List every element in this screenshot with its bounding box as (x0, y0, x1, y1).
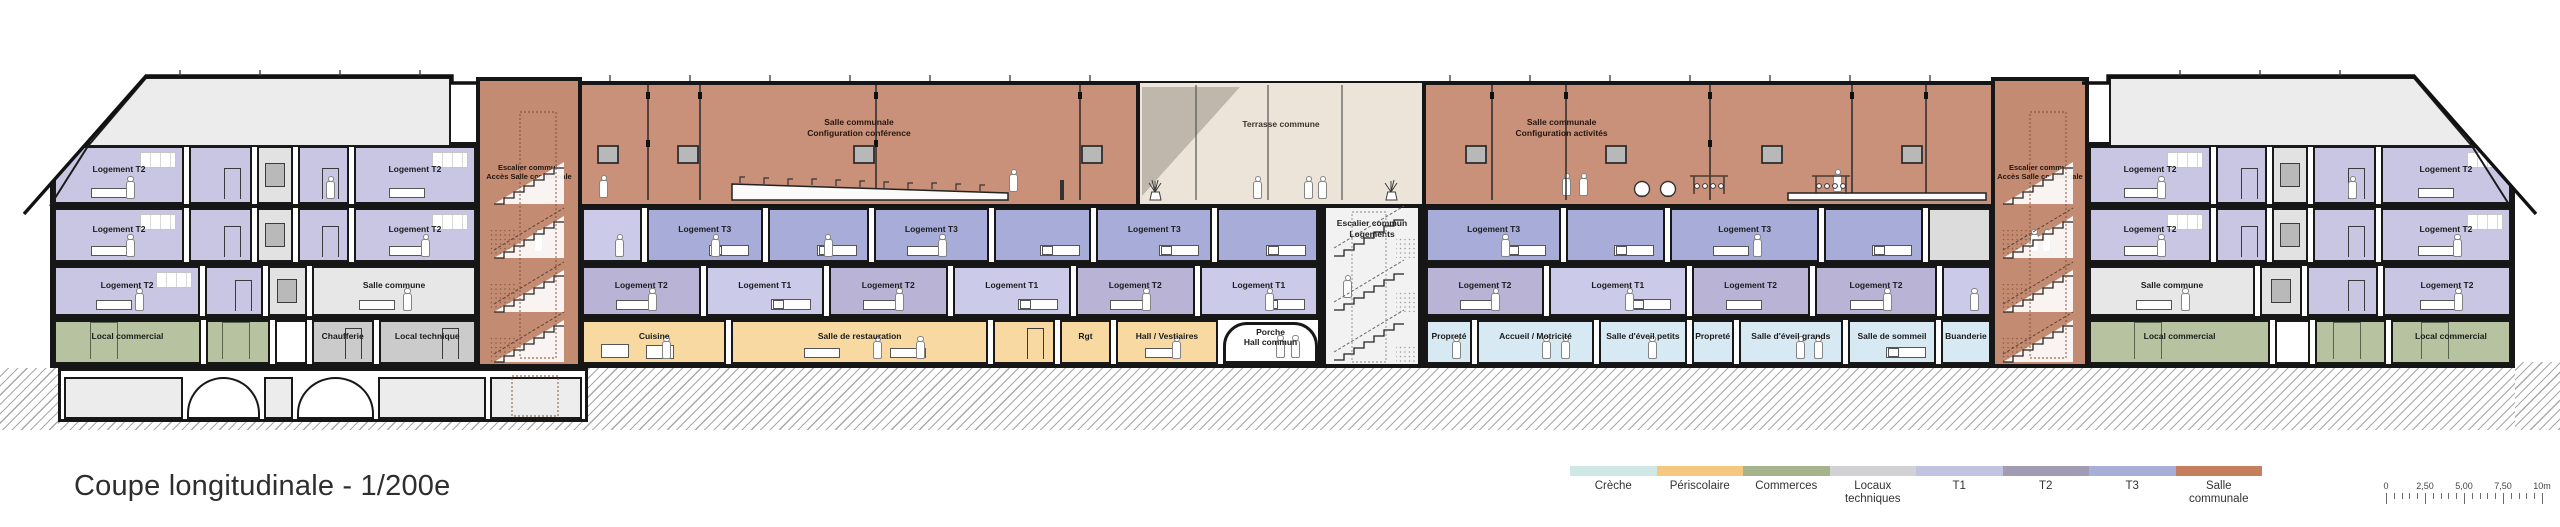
bed-glyph (1266, 245, 1306, 256)
legend-label: Périscolaire (1657, 480, 1744, 493)
room-tech: Local technique (379, 320, 476, 364)
person-figure (1264, 288, 1273, 311)
bed-glyph (1631, 299, 1671, 310)
room-t3: Logement T3 (874, 208, 990, 262)
lift-glyph (2280, 223, 2300, 247)
room-label: Logement T3 (1718, 224, 1771, 234)
bed-glyph (1040, 245, 1080, 256)
table-glyph (2418, 246, 2454, 256)
legend-swatch (2176, 466, 2263, 476)
floor-strip-rw-f3: Logement T2Logement T2 (2085, 204, 2515, 266)
person-figure (915, 336, 924, 359)
room-t2w (2216, 208, 2267, 262)
person-figure (1579, 173, 1588, 196)
room-t1: Logement T1 (1200, 266, 1319, 316)
scale-tick (2441, 493, 2442, 499)
person-figure (1491, 288, 1500, 311)
room-label: Logement T2 (2420, 164, 2473, 174)
stair-core-center: Escalier commun Logements (1322, 204, 1422, 368)
room-t3 (994, 208, 1091, 262)
room-t2: Logement T2 (1076, 266, 1195, 316)
person-figure (2156, 176, 2165, 199)
room-cavern (264, 377, 293, 419)
room-t3: Logement T3 (647, 208, 763, 262)
room-t3: Logement T3 (1670, 208, 1819, 262)
room-shaft (2272, 208, 2308, 262)
table-glyph (389, 246, 425, 256)
person-figure (1882, 288, 1891, 311)
room-t1: Logement T1 (706, 266, 825, 316)
person-figure (134, 288, 143, 311)
table-glyph (2124, 188, 2160, 198)
table-glyph (359, 300, 395, 310)
room-label: Salle de sommeil (1858, 331, 1927, 341)
floor-strip-rw-f2: Salle communeLogement T2 (2085, 262, 2515, 320)
floor-strip-c-f3-r: Logement T3Logement T3 (1422, 204, 1995, 266)
room-label: Logement T1 (1591, 280, 1644, 290)
room-tech: Chaufferie (312, 320, 374, 364)
room-label: Salle commune (2141, 280, 2203, 290)
legend-label: Salle communale (2176, 480, 2263, 506)
scale-ticks (2386, 493, 2550, 505)
room-label: Salle communale Configuration activités (1426, 117, 1697, 138)
floor-strip-c-f2-l: Logement T2Logement T1Logement T2Logemen… (578, 262, 1322, 320)
person-figure (1833, 169, 1842, 192)
legend-label: T2 (2003, 480, 2090, 493)
person-figure (615, 234, 624, 257)
room-vault (297, 377, 374, 419)
room-t3 (1824, 208, 1923, 262)
bed-glyph (771, 299, 811, 310)
scale-tick (2402, 493, 2403, 499)
floor-strip-rw-gr: Local commercialLocal commercial (2085, 316, 2515, 368)
legend-swatch (1743, 466, 1830, 476)
legend-label: Commerces (1743, 480, 1830, 493)
room-shaft (268, 266, 308, 316)
room-cre: Salle d'éveil petits (1599, 320, 1687, 364)
person-figure (599, 175, 608, 198)
room-label: Logement T3 (678, 224, 731, 234)
scale-number: 0 (2383, 481, 2388, 491)
stair-tower-left: Escalier commun Accès Salle communale (476, 77, 582, 368)
room-label: Logement T1 (738, 280, 791, 290)
person-figure (1253, 176, 1262, 199)
room-t2w (298, 208, 349, 262)
room-t2w: Logement T2 (2089, 146, 2211, 204)
door-glyph (2348, 280, 2365, 311)
room-t2w: Logement T2 (54, 266, 200, 316)
scale-tick (2425, 493, 2426, 504)
stair-tower-right: Escalier commun Accès Salle communale (1991, 77, 2089, 368)
room-peri: Cuisine (582, 320, 726, 364)
room-label: Porche Hall commun (1244, 327, 1297, 347)
table-glyph (804, 348, 840, 358)
floor-strip-c-f3-l: Logement T3Logement T3Logement T3 (578, 204, 1322, 266)
scale-number: 10m (2533, 481, 2551, 491)
room-t2w (2307, 266, 2378, 316)
room-label: Logement T2 (2421, 280, 2474, 290)
floor-strip-c-f2-r: Logement T2Logement T1Logement T2Logemen… (1422, 262, 1995, 320)
room-label: Local technique (395, 331, 460, 341)
room-label: Propreté (1431, 331, 1466, 341)
person-figure (1562, 173, 1571, 196)
floor-strip-lw-base (58, 368, 588, 422)
legend-item: Salle communale (2176, 466, 2263, 506)
room-t1: Logement T1 (1549, 266, 1687, 316)
terrasse-commune: Terrasse commune (1140, 81, 1422, 208)
room-label: Escalier commun Accès Salle communale (480, 163, 578, 182)
person-figure (1969, 288, 1978, 311)
person-figure (647, 288, 656, 311)
person-figure (1752, 234, 1761, 257)
floor-strip-c-gr-r: PropretéAccueil / MotricitéSalle d'éveil… (1422, 316, 1995, 368)
lift-glyph (2271, 279, 2291, 303)
door-glyph (224, 168, 241, 199)
floor-strip-lw-f3: Logement T2Logement T2 (50, 204, 480, 266)
scale-tick (2542, 493, 2543, 504)
room-label: Logement T3 (1128, 224, 1181, 234)
legend-label: Locaux techniques (1830, 480, 1917, 506)
scale-tick (2456, 493, 2457, 499)
legend-item: Commerces (1743, 466, 1830, 506)
room-cre: Propreté (1426, 320, 1472, 364)
person-figure (894, 288, 903, 311)
person-figure (2156, 234, 2165, 257)
person-figure (2029, 229, 2038, 252)
bed-glyph (1614, 245, 1654, 256)
room-label: Logement T2 (101, 280, 154, 290)
room-t2: Logement T2 (1815, 266, 1938, 316)
person-figure (402, 288, 411, 311)
scale-bar: 02,505,007,5010m (2386, 481, 2550, 511)
room-t2w (2313, 146, 2376, 204)
table-glyph (2124, 246, 2160, 256)
room-label: Hall / Vestiaires (1136, 331, 1198, 341)
room-porche: Porche Hall commun (1223, 322, 1318, 364)
person-figure (2452, 234, 2461, 257)
person-figure (326, 176, 335, 199)
table-glyph (2136, 300, 2172, 310)
bed-glyph (1159, 245, 1199, 256)
bed-glyph (1886, 347, 1926, 358)
room-label: Salle commune (363, 280, 425, 290)
room-label: Chaufferie (322, 331, 364, 341)
room-t2w (189, 208, 252, 262)
table-glyph (2420, 300, 2456, 310)
legend-label: T3 (2089, 480, 2176, 493)
room-t1: Logement T1 (953, 266, 1072, 316)
room-label: Salle communale Configuration conférence (582, 117, 1136, 138)
room-comm: Local commercial (2089, 320, 2270, 364)
legend-swatch (1916, 466, 2003, 476)
room-t2w (298, 146, 349, 204)
room-label: Rgt (1078, 331, 1092, 341)
room-label: Logement T1 (985, 280, 1038, 290)
room-label: Local commercial (2415, 331, 2487, 341)
room-peri (993, 320, 1055, 364)
room-t2w: Logement T2 (354, 208, 476, 262)
room-t1 (1942, 266, 1991, 316)
room-t2w: Logement T2 (2381, 208, 2511, 262)
room-label: Logement T2 (2420, 224, 2473, 234)
room-label: Escalier commun Accès Salle communale (1995, 163, 2085, 182)
legend-item: Périscolaire (1657, 466, 1744, 506)
bed-glyph (1872, 245, 1912, 256)
scale-number: 7,50 (2494, 481, 2512, 491)
floor-strip-lw-gr: Local commercialChaufferieLocal techniqu… (50, 316, 480, 368)
person-figure (125, 234, 134, 257)
door-glyph (2241, 226, 2258, 257)
room-label: Salle de restauration (818, 331, 902, 341)
room-cave (378, 377, 486, 419)
room-salleco: Salle commune (312, 266, 476, 316)
room-t2w: Logement T2 (54, 146, 184, 204)
room-t2w: Logement T2 (2381, 146, 2511, 204)
window-glyph (156, 272, 192, 288)
room-shaft (2272, 146, 2308, 204)
scale-tick (2495, 493, 2496, 499)
room-label: Propreté (1695, 331, 1730, 341)
floor-strip-c-gr-l: CuisineSalle de restaurationRgtHall / Ve… (578, 316, 1322, 368)
person-figure (2180, 288, 2189, 311)
room-t2w (205, 266, 262, 316)
bed-glyph (1018, 299, 1058, 310)
scale-tick (2511, 493, 2512, 499)
room-label: Logement T2 (1724, 280, 1777, 290)
room-label: Buanderie (1945, 331, 1987, 341)
room-porte (2275, 320, 2310, 364)
room-t2: Logement T2 (1692, 266, 1810, 316)
room-vault (187, 377, 260, 419)
room-peri: Hall / Vestiaires (1116, 320, 1218, 364)
room-t2w: Logement T2 (54, 208, 184, 262)
salle-communale-activites: Salle communale Configuration activités (1422, 81, 1995, 208)
room-label: Logement T2 (2124, 224, 2177, 234)
table-glyph (1713, 246, 1749, 256)
legend-item: T2 (2003, 466, 2090, 506)
person-figure (1343, 275, 1352, 298)
room-label: Cuisine (639, 331, 670, 341)
door-glyph (2241, 168, 2258, 199)
salle-communale-conference: Salle communale Configuration conférence (578, 81, 1140, 208)
legend-swatch (2089, 466, 2176, 476)
scale-tick (2409, 493, 2410, 499)
scale-tick (2480, 493, 2481, 499)
legend-swatch (1570, 466, 1657, 476)
room-shaft (257, 208, 293, 262)
legend: CrèchePériscolaireCommercesLocaux techni… (1570, 466, 2262, 506)
room-comm (206, 320, 270, 364)
room-shaft (2260, 266, 2302, 316)
legend-swatch (1830, 466, 1917, 476)
room-label: Logement T2 (1459, 280, 1512, 290)
room-label: Terrasse commune (1140, 119, 1422, 130)
legend-label: Crèche (1570, 480, 1657, 493)
floor-strip-rw-attic: Logement T2Logement T2 (2085, 142, 2515, 208)
room-porte (275, 320, 306, 364)
scale-numbers: 02,505,007,5010m (2386, 481, 2550, 493)
person-figure (125, 176, 134, 199)
room-label: Logement T2 (1850, 280, 1903, 290)
bed-glyph (1506, 245, 1546, 256)
scale-tick (2394, 493, 2395, 499)
person-figure (823, 234, 832, 257)
room-cave (64, 377, 183, 419)
room-label: Logement T2 (388, 224, 441, 234)
floor-strip-lw-f2: Logement T2Salle commune (50, 262, 480, 320)
person-figure (2347, 176, 2356, 199)
person-figure (710, 234, 719, 257)
drawing-title: Coupe longitudinale - 1/200e (74, 470, 450, 503)
room-comm: Local commercial (54, 320, 201, 364)
scale-tick (2464, 493, 2465, 504)
section-drawing: Salle communale Configuration conférence… (0, 0, 2560, 527)
legend-item: T3 (2089, 466, 2176, 506)
table-glyph (96, 300, 132, 310)
room-label: Logement T2 (93, 224, 146, 234)
room-t2w: Logement T2 (2089, 208, 2211, 262)
table-glyph (91, 246, 127, 256)
door-glyph (322, 226, 339, 257)
door-glyph (1027, 328, 1044, 359)
doorg-glyph (222, 322, 250, 359)
room-cavedot (490, 377, 582, 419)
room-label: Salle d'éveil grands (1751, 331, 1830, 341)
scale-tick (2472, 493, 2473, 499)
lift-glyph (2280, 163, 2300, 187)
room-label: Logement T2 (388, 164, 441, 174)
room-cre: Salle d'éveil grands (1739, 320, 1844, 364)
table-glyph (389, 188, 425, 198)
legend-label: T1 (1916, 480, 2003, 493)
room-grayr (1928, 208, 1991, 262)
room-label: Logement T2 (1109, 280, 1162, 290)
room-cre: Salle de sommeil (1848, 320, 1936, 364)
room-t2: Logement T2 (1426, 266, 1544, 316)
person-figure (1500, 234, 1509, 257)
person-figure (1009, 169, 1018, 192)
room-t2w (2216, 146, 2267, 204)
room-label: Logement T2 (2124, 164, 2177, 174)
scale-tick (2534, 493, 2535, 499)
room-salleco: Salle commune (2089, 266, 2255, 316)
room-t3: Logement T3 (1096, 208, 1212, 262)
scale-tick (2526, 493, 2527, 499)
room-peri: Rgt (1060, 320, 1111, 364)
scale-tick (2503, 493, 2504, 504)
table-glyph (91, 188, 127, 198)
person-figure (1304, 176, 1313, 199)
attic-void-left (88, 78, 450, 146)
room-label: Logement T2 (615, 280, 668, 290)
terrain-right (2515, 362, 2560, 430)
room-label: Salle d'éveil petits (1606, 331, 1679, 341)
scale-tick (2386, 493, 2387, 504)
room-label: Logement T2 (862, 280, 915, 290)
room-cre: Accueil / Motricité (1477, 320, 1594, 364)
terrain-left (0, 368, 58, 430)
room-t3 (1217, 208, 1318, 262)
legend-item: T1 (1916, 466, 2003, 506)
room-label: Escalier commun Logements (1326, 218, 1418, 239)
lift-glyph (265, 223, 285, 247)
room-label: Local commercial (92, 331, 164, 341)
table-glyph (2418, 188, 2454, 198)
door-glyph (224, 226, 241, 257)
room-t2: Logement T2 (582, 266, 701, 316)
room-comm: Local commercial (2391, 320, 2511, 364)
person-figure (2042, 229, 2051, 252)
attic-void-right (2110, 78, 2472, 146)
table-glyph (1850, 300, 1886, 310)
lift-glyph (265, 163, 285, 187)
room-t3 (1566, 208, 1665, 262)
person-figure (1318, 176, 1327, 199)
scale-tick (2433, 493, 2434, 499)
room-cre: Buanderie (1941, 320, 1991, 364)
person-figure (937, 234, 946, 257)
room-t2: Logement T2 (829, 266, 948, 316)
lift-glyph (277, 279, 297, 303)
room-t2w: Logement T2 (2383, 266, 2511, 316)
scale-number: 5,00 (2455, 481, 2473, 491)
room-label: Logement T1 (1232, 280, 1285, 290)
room-peri: Salle de restauration (731, 320, 988, 364)
room-label: Logement T3 (905, 224, 958, 234)
counter-glyph (601, 344, 629, 358)
room-cre: Propreté (1692, 320, 1734, 364)
room-shaft (257, 146, 293, 204)
room-label: Local commercial (2144, 331, 2216, 341)
person-figure (534, 229, 543, 252)
scale-tick (2448, 493, 2449, 499)
person-figure (1624, 288, 1633, 311)
room-t1 (582, 208, 642, 262)
legend-item: Crèche (1570, 466, 1657, 506)
floor-strip-lw-attic: Logement T2Logement T2 (50, 142, 480, 208)
scale-number: 2,50 (2416, 481, 2434, 491)
room-t3: Logement T3 (1426, 208, 1561, 262)
room-label: Logement T3 (1467, 224, 1520, 234)
doorg-glyph (2333, 322, 2361, 359)
person-figure (2453, 288, 2462, 311)
table-glyph (1726, 300, 1762, 310)
scale-tick (2417, 493, 2418, 499)
person-figure (421, 234, 430, 257)
legend-item: Locaux techniques (1830, 466, 1917, 506)
room-comm (2315, 320, 2386, 364)
room-t3 (768, 208, 869, 262)
room-t2w (2313, 208, 2376, 262)
room-label: Logement T2 (93, 164, 146, 174)
door-glyph (2348, 226, 2365, 257)
legend-swatch (2003, 466, 2090, 476)
person-figure (1141, 288, 1150, 311)
scale-tick (2487, 493, 2488, 499)
scale-tick (2519, 493, 2520, 499)
door-glyph (235, 280, 252, 311)
room-label: Accueil / Motricité (1499, 331, 1572, 341)
room-t2w: Logement T2 (354, 146, 476, 204)
room-t2w (189, 146, 252, 204)
legend-swatch (1657, 466, 1744, 476)
